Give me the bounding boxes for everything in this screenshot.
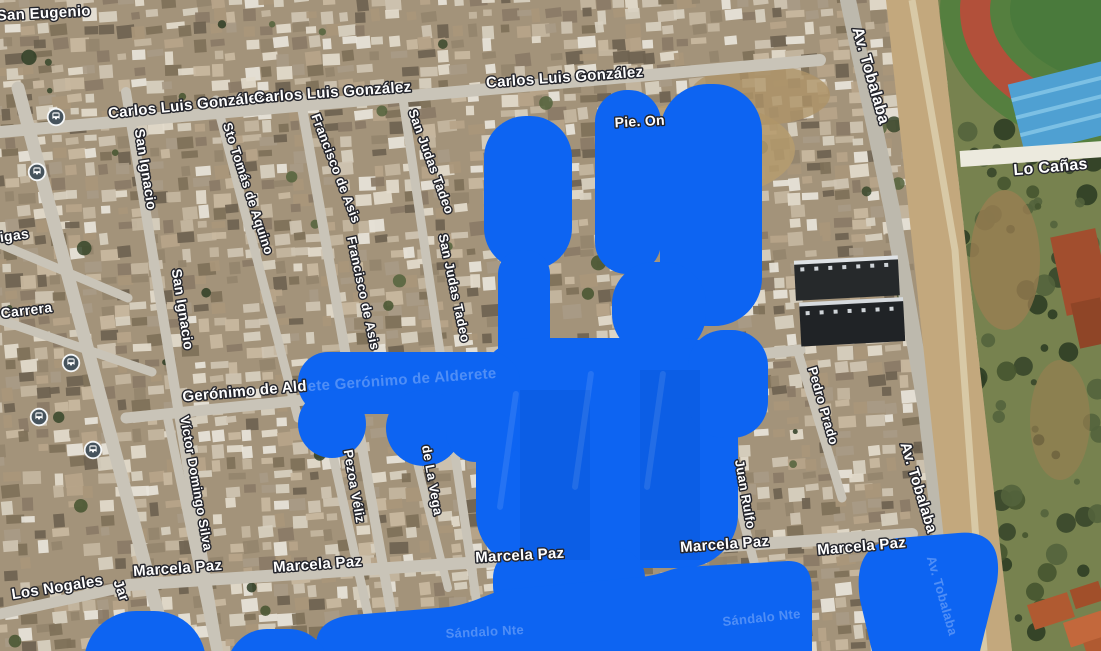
bus-stop-icon[interactable] [84, 441, 102, 459]
street-label: Pie. On [614, 112, 665, 131]
bus-stop-icon[interactable] [47, 108, 65, 126]
bus-stop-icon[interactable] [30, 408, 48, 426]
bus-stop-icon[interactable] [62, 354, 80, 372]
map-canvas[interactable]: erete Gerónimo de AldereteSándalo NteSán… [0, 0, 1101, 651]
satellite-map[interactable]: erete Gerónimo de AldereteSándalo NteSán… [0, 0, 1101, 651]
bus-stop-icon[interactable] [28, 163, 46, 181]
